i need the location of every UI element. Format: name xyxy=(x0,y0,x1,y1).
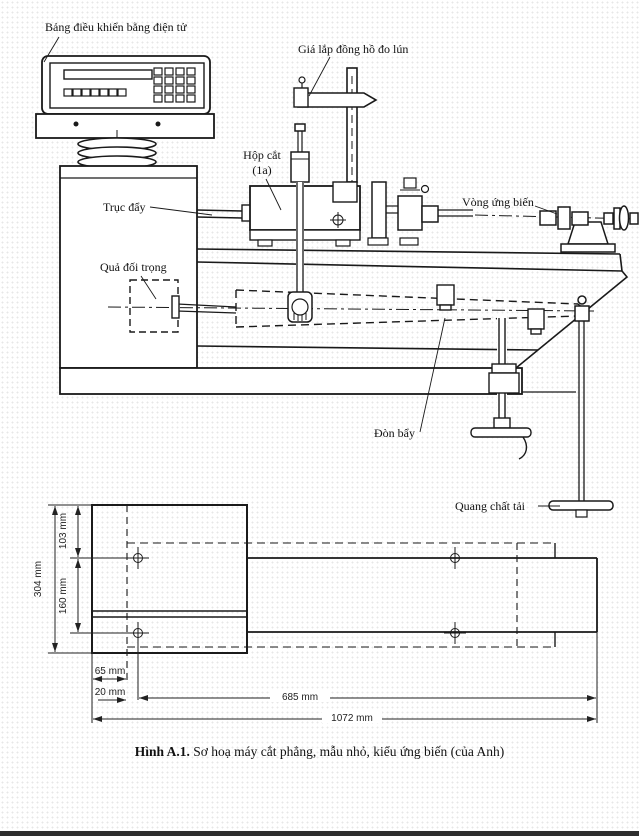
display-bar xyxy=(64,70,152,79)
label-strain-ring: Vòng ứng biến xyxy=(462,195,534,209)
clamp-assembly xyxy=(368,178,473,245)
dim-103: 103 mm xyxy=(58,513,69,549)
dimension-lines xyxy=(48,505,597,723)
hole-marks xyxy=(127,547,466,644)
label-dial-gauge-bracket: Giá lắp đồng hồ đo lún xyxy=(298,42,408,56)
dim-20: 20 mm xyxy=(95,687,126,698)
label-shear-box-id: (1a) xyxy=(252,163,271,177)
label-control-panel: Bảng điều khiển bằng điện tử xyxy=(45,20,187,34)
dim-1072: 1072 mm xyxy=(331,713,373,724)
dim-685: 685 mm xyxy=(282,692,318,703)
figure-caption-label: Hình A.1. xyxy=(135,744,190,759)
control-panel xyxy=(36,56,214,138)
load-hanger-assembly xyxy=(549,296,613,517)
shear-machine-diagram: Bảng điều khiển bằng điện tử Giá lắp đồn… xyxy=(0,0,639,836)
jack-hook xyxy=(519,437,526,459)
scanned-figure-page: Bảng điều khiển bằng điện tử Giá lắp đồn… xyxy=(0,0,639,836)
dim-65: 65 mm xyxy=(95,666,126,677)
dim-304: 304 mm xyxy=(33,561,44,597)
label-load-hanger: Quang chất tải xyxy=(455,499,526,513)
dim-160: 160 mm xyxy=(58,578,69,614)
label-shear-box: Hộp cắt xyxy=(243,148,281,162)
figure-caption: Hình A.1. Sơ hoạ máy cắt phẳng, mẫu nhỏ,… xyxy=(0,744,639,760)
figure-caption-text: Sơ hoạ máy cắt phẳng, mẫu nhỏ, kiểu ứng … xyxy=(193,744,504,759)
label-lever: Đòn bẩy xyxy=(374,426,415,440)
label-push-shaft: Trục đẩy xyxy=(103,200,146,214)
scan-edge-artifact xyxy=(0,831,639,836)
push-shaft xyxy=(197,205,251,221)
jack-handle xyxy=(471,428,531,437)
panel-base xyxy=(36,114,214,138)
button-row xyxy=(64,89,126,96)
plan-view xyxy=(92,505,597,683)
hanger-crossbar xyxy=(549,501,613,510)
label-counterweight: Quả đối trọng xyxy=(100,260,167,274)
